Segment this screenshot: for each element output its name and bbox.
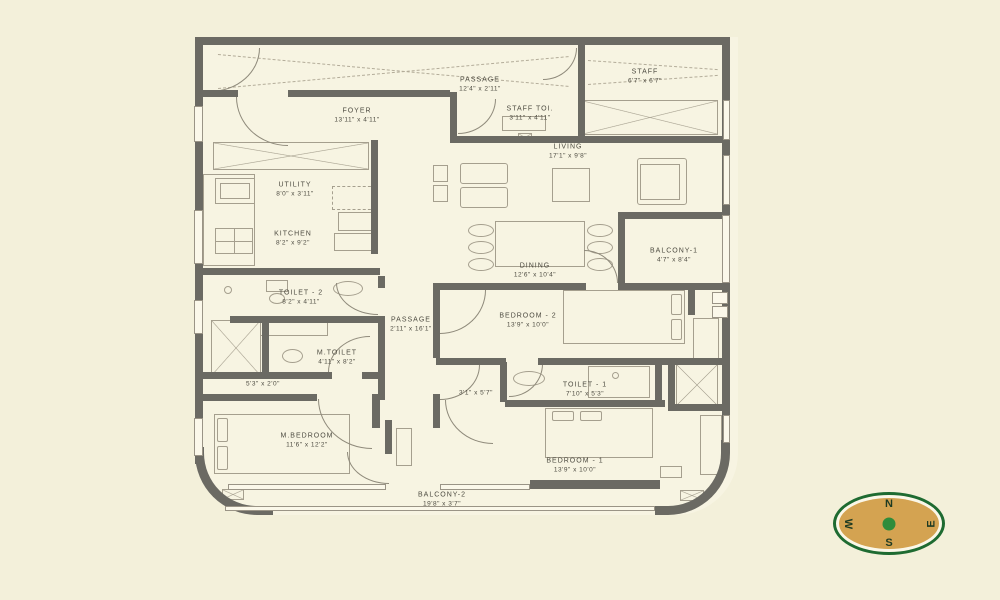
room-label-staff: STAFF 6'7" x 6'7" — [628, 68, 662, 87]
window — [194, 418, 203, 456]
window — [194, 106, 203, 142]
armchair — [460, 163, 508, 184]
room-label-toilet1: TOILET - 1 7'10" x 5'3" — [563, 381, 607, 400]
armchair — [460, 187, 508, 208]
room-label-utility: UTILITY 8'0" x 3'11" — [276, 181, 314, 200]
room-dims: 11'6" x 12'2" — [281, 442, 334, 450]
wall — [450, 92, 457, 143]
wall — [378, 316, 385, 400]
room-dims: 12'6" x 10'4" — [514, 272, 556, 280]
shaft-crossbox — [211, 320, 261, 376]
room-dims: 7'10" x 5'3" — [563, 391, 607, 399]
compass-north-label: N — [885, 498, 893, 510]
wardrobe-crossbox — [582, 100, 718, 135]
shaft-crossbox — [676, 364, 718, 406]
compass-east-label: E — [925, 520, 937, 527]
wall — [262, 318, 269, 376]
room-name: TOILET - 2 — [279, 289, 323, 298]
wall — [436, 358, 506, 365]
room-label-m-bedroom: M.BEDROOM 11'6" x 12'2" — [281, 432, 334, 451]
wall — [578, 45, 585, 136]
room-dims: 17'1" x 9'8" — [549, 153, 587, 161]
room-dims: 8'0" x 3'11" — [276, 191, 314, 199]
window — [723, 155, 730, 205]
wall — [688, 283, 695, 315]
sofa-cushion — [640, 164, 680, 200]
room-name: STAFF TOI. — [507, 105, 554, 114]
room-dims: 13'9" x 10'0" — [499, 322, 556, 330]
wall — [618, 212, 625, 290]
room-label-staff-toilet: STAFF TOI. 3'11" x 4'11" — [507, 105, 554, 124]
room-name: BEDROOM - 2 — [499, 312, 556, 321]
wall — [436, 283, 586, 290]
wardrobe — [693, 318, 719, 360]
wall — [195, 372, 332, 379]
pillow — [671, 319, 682, 340]
coffee-table — [552, 168, 590, 202]
room-name: STAFF — [628, 68, 662, 77]
balcony-railing — [722, 215, 730, 283]
room-name: BALCONY-1 — [650, 247, 698, 256]
compass-center-dot — [883, 517, 896, 530]
room-label-balcony1: BALCONY-1 4'7" x 8'4" — [650, 247, 698, 266]
room-name: DINING — [514, 262, 556, 271]
shower-head — [612, 372, 619, 379]
wall — [505, 400, 665, 407]
room-dims: 6'7" x 6'7" — [628, 78, 662, 86]
wall — [378, 276, 385, 288]
compass-west-label: W — [842, 518, 854, 528]
window — [723, 415, 730, 443]
pillow — [552, 411, 574, 421]
room-name: M.BEDROOM — [281, 432, 334, 441]
room-dims: 13'11" x 4'11" — [334, 117, 379, 125]
room-label-foyer: FOYER 13'11" x 4'11" — [334, 107, 379, 126]
dining-table — [495, 221, 585, 267]
room-name: KITCHEN — [274, 230, 312, 239]
room-name: UTILITY — [276, 181, 314, 190]
room-label-m-toilet: M.TOILET 4'11" x 8'2" — [317, 349, 357, 368]
room-name: BALCONY-2 — [418, 491, 466, 500]
pillow — [671, 294, 682, 315]
room-label-balcony2: BALCONY-2 19'8" x 3'7" — [418, 491, 466, 510]
ledge — [712, 306, 728, 318]
shower-head — [224, 286, 232, 294]
wall — [230, 316, 380, 323]
room-name: LIVING — [549, 143, 587, 152]
wall — [500, 362, 507, 402]
sliding-window — [228, 484, 386, 490]
washing-machine — [215, 228, 253, 254]
window — [194, 300, 203, 334]
wall-rounded-corner — [655, 440, 730, 515]
dining-chair — [468, 224, 494, 237]
wall — [668, 362, 675, 408]
fridge — [332, 186, 376, 210]
wall — [200, 37, 730, 45]
room-name: FOYER — [334, 107, 379, 116]
room-dims: 4'7" x 8'4" — [650, 257, 698, 265]
wall — [450, 136, 730, 143]
wall — [195, 268, 380, 275]
tv-unit — [433, 185, 448, 202]
room-dims: 12'4" x 2'11" — [459, 86, 501, 94]
wall-rounded-corner — [195, 447, 273, 515]
room-name: M.TOILET — [317, 349, 357, 358]
room-label-bedroom1: BEDROOM - 1 13'9" x 10'0" — [546, 457, 603, 476]
dim-text: 3'1" x 5'7" — [459, 389, 493, 397]
dim-label-lobby: 3'1" x 5'7" — [459, 388, 493, 397]
dim-label-dressing: 5'3" x 2'0" — [246, 379, 280, 388]
room-dims: 13'9" x 10'0" — [546, 467, 603, 475]
compass-south-label: S — [885, 537, 892, 549]
dresser — [396, 428, 412, 466]
dim-text: 5'3" x 2'0" — [246, 380, 280, 388]
room-label-bedroom2: BEDROOM - 2 13'9" x 10'0" — [499, 312, 556, 331]
wall — [372, 394, 380, 428]
room-label-dining: DINING 12'6" x 10'4" — [514, 262, 556, 281]
wc — [282, 349, 303, 363]
wall — [433, 283, 440, 358]
dining-chair — [468, 258, 494, 271]
pillow — [580, 411, 602, 421]
room-label-living: LIVING 17'1" x 9'8" — [549, 143, 587, 162]
window — [723, 100, 730, 140]
sliding-window — [440, 484, 530, 490]
room-dims: 2'11" x 16'1" — [390, 326, 432, 334]
room-name: TOILET - 1 — [563, 381, 607, 390]
wall — [433, 394, 440, 428]
wall — [195, 92, 203, 464]
ledge — [712, 292, 728, 304]
wall — [385, 420, 392, 454]
wall — [530, 480, 660, 489]
wall — [195, 37, 203, 97]
room-label-passage-top: PASSAGE 12'4" x 2'11" — [459, 76, 501, 95]
room-name: PASSAGE — [390, 316, 432, 325]
kitchen-cabinet — [334, 233, 376, 251]
room-name: BEDROOM - 1 — [546, 457, 603, 466]
utility-sink-basin — [220, 183, 250, 199]
pillow — [217, 418, 228, 442]
dining-chair — [468, 241, 494, 254]
wall — [618, 283, 730, 290]
room-dims: 8'2" x 4'11" — [279, 299, 323, 307]
wall — [655, 358, 662, 407]
room-dims: 19'8" x 3'7" — [418, 501, 466, 509]
wall — [195, 394, 317, 401]
wall — [371, 140, 378, 254]
room-dims: 4'11" x 8'2" — [317, 359, 357, 367]
dining-chair — [587, 224, 613, 237]
compass: N S W E — [833, 492, 945, 555]
room-dims: 3'11" x 4'11" — [507, 115, 554, 123]
bed — [563, 290, 685, 344]
room-label-kitchen: KITCHEN 8'2" x 9'2" — [274, 230, 312, 249]
window — [194, 210, 203, 264]
wall — [538, 358, 660, 365]
wall — [668, 404, 730, 411]
room-label-toilet2: TOILET - 2 8'2" x 4'11" — [279, 289, 323, 308]
wall — [288, 90, 450, 97]
room-dims: 8'2" x 9'2" — [274, 240, 312, 248]
wardrobe-crossbox — [213, 142, 369, 170]
wall — [195, 90, 238, 97]
floor-plan-page: PASSAGE 12'4" x 2'11" STAFF 6'7" x 6'7" … — [0, 0, 1000, 600]
room-name: PASSAGE — [459, 76, 501, 85]
wall — [618, 212, 730, 219]
room-label-passage-mid: PASSAGE 2'11" x 16'1" — [390, 316, 432, 335]
tv-unit — [433, 165, 448, 182]
wall — [362, 372, 385, 379]
